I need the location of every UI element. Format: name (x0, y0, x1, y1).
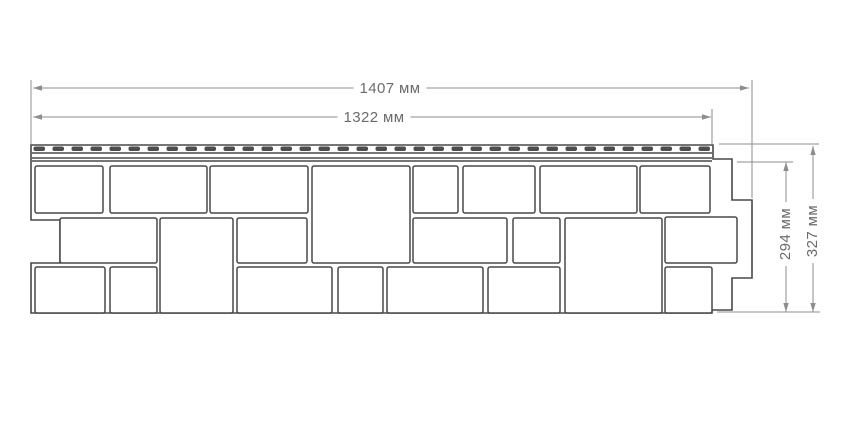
stone-block (640, 166, 710, 213)
stone-block (338, 267, 383, 313)
dimension-arrow (33, 85, 42, 90)
nail-hem-perforation (433, 147, 445, 152)
nail-hem-perforation (205, 147, 217, 152)
nail-hem-perforation (53, 147, 65, 152)
dimension-label-nominal-width: 1322 мм (338, 110, 411, 127)
dimension-arrow (740, 85, 749, 90)
nail-hem-perforation (224, 147, 236, 152)
nail-hem-perforation (566, 147, 578, 152)
stone-block (565, 218, 662, 313)
stone-block (413, 218, 507, 263)
stone-block (513, 218, 560, 263)
dimension-arrow (33, 114, 42, 119)
technical-drawing-canvas: 1407 мм 1322 мм 294 мм 327 мм (0, 0, 850, 425)
stone-block (312, 166, 410, 263)
nail-hem-perforation (262, 147, 274, 152)
nail-hem-perforation (699, 147, 711, 152)
stone-block (110, 267, 157, 313)
stone-block (237, 218, 307, 263)
stone-block (237, 267, 332, 313)
dimension-label-overall-width: 1407 мм (354, 81, 427, 98)
stone-block (35, 267, 105, 313)
nail-hem-perforation (623, 147, 635, 152)
nail-hem-perforation (547, 147, 559, 152)
nail-hem-perforation (167, 147, 179, 152)
stone-block (665, 217, 737, 263)
stone-block (413, 166, 458, 213)
nail-hem-perforation (243, 147, 255, 152)
nail-hem-perforation (110, 147, 122, 152)
facade-panel-drawing (0, 0, 850, 425)
nail-hem-perforation (376, 147, 388, 152)
dimension-arrow (810, 303, 815, 312)
stone-block (210, 166, 308, 213)
nail-hem-perforation (604, 147, 616, 152)
nail-hem-perforation (129, 147, 141, 152)
dimension-arrow (702, 114, 711, 119)
nail-hem-perforation (338, 147, 350, 152)
nail-hem-perforation (91, 147, 103, 152)
nail-hem-perforation (680, 147, 692, 152)
nail-hem-perforation (661, 147, 673, 152)
nail-hem-perforation (490, 147, 502, 152)
stone-block (160, 218, 233, 313)
dimension-arrow (783, 303, 788, 312)
stone-block (540, 166, 637, 213)
nail-hem-perforation (509, 147, 521, 152)
nail-hem-perforation (300, 147, 312, 152)
stone-block (463, 166, 535, 213)
nail-hem-perforation (34, 147, 46, 152)
dimension-arrow (810, 146, 815, 155)
nail-hem-perforation (414, 147, 426, 152)
nail-hem-perforation (281, 147, 293, 152)
nail-hem-perforation (148, 147, 160, 152)
nail-hem-perforation (528, 147, 540, 152)
stone-block (110, 166, 207, 213)
nail-hem-perforation (319, 147, 331, 152)
nail-hem-perforation (186, 147, 198, 152)
stone-block (387, 267, 483, 313)
stone-block (60, 218, 157, 263)
nail-hem-perforation (72, 147, 84, 152)
nail-hem-perforation (471, 147, 483, 152)
nail-hem-perforation (357, 147, 369, 152)
nail-hem-perforation (642, 147, 654, 152)
dimension-label-nominal-height: 294 мм (778, 202, 795, 266)
stone-block (665, 267, 712, 313)
stone-block (488, 267, 560, 313)
dimension-label-overall-height: 327 мм (805, 199, 822, 263)
nail-hem-perforation (585, 147, 597, 152)
nail-hem-perforation (395, 147, 407, 152)
nail-hem-perforation (452, 147, 464, 152)
stone-block (35, 166, 103, 213)
dimension-arrow (783, 162, 788, 171)
